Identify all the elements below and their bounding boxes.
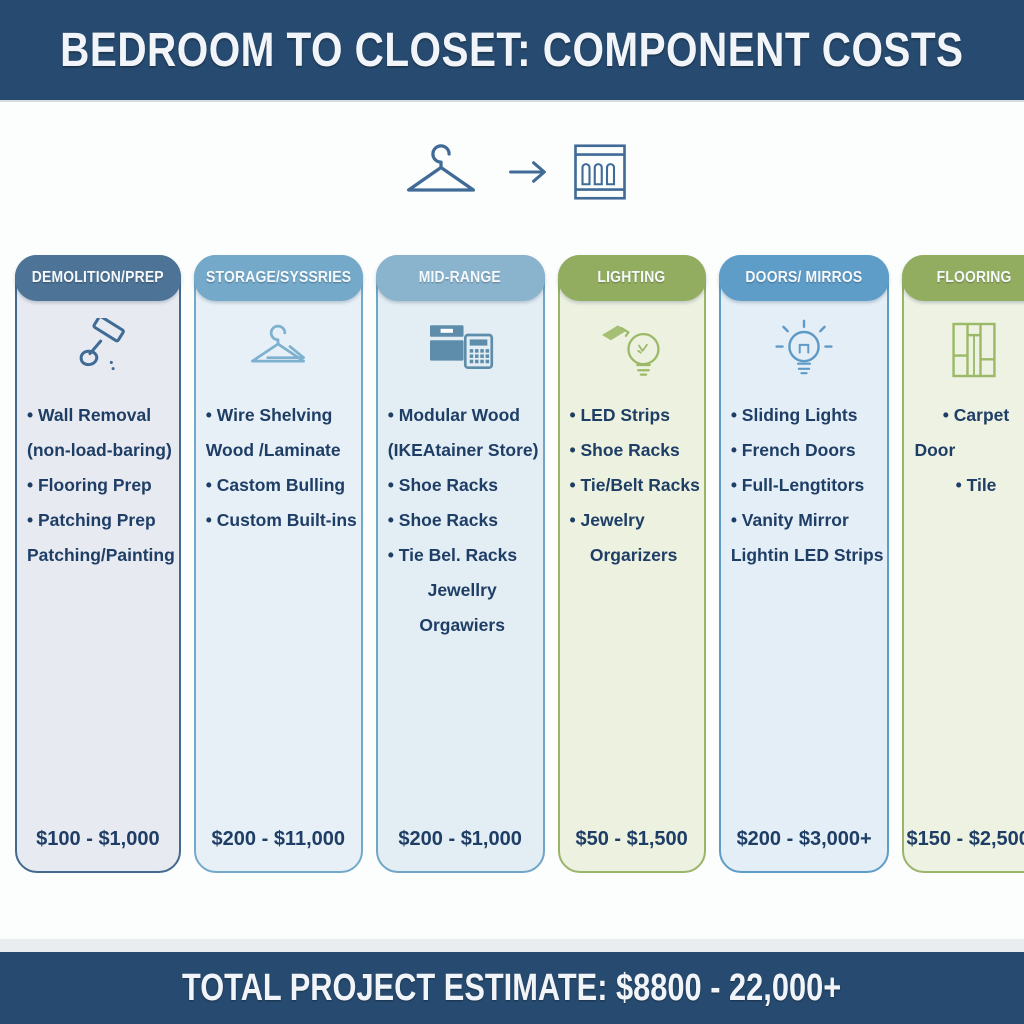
footer-band: TOTAL PROJECT ESTIMATE: $8800 - 22,000+ bbox=[0, 952, 1024, 1024]
item-list: • Sliding Lights• French Doors• Full-Len… bbox=[721, 393, 888, 580]
bulb-rays-icon bbox=[721, 307, 888, 393]
list-item: Lightin LED Strips bbox=[729, 545, 884, 566]
list-item: • Custom Built-ins bbox=[204, 510, 357, 531]
column-storage-syssries: STORAGE/SYSSRIES• Wire ShelvingWood /Lam… bbox=[194, 255, 363, 873]
list-item: • Shoe Racks bbox=[386, 510, 539, 531]
list-item: (IKEAtainer Store) bbox=[386, 440, 539, 461]
price-range: $200 - $11,000 bbox=[196, 828, 361, 871]
demolition-hammer-icon bbox=[17, 307, 179, 393]
list-item: • Shoe Racks bbox=[568, 440, 700, 461]
column-header-label: LIGHTING bbox=[598, 270, 666, 287]
column-header: STORAGE/SYSSRIES bbox=[194, 255, 363, 301]
list-item: • Tie Bel. Racks bbox=[386, 545, 539, 566]
arrow-right-icon bbox=[506, 155, 552, 189]
list-item: Orgawiers bbox=[386, 615, 539, 636]
list-item: Patching/Painting bbox=[25, 545, 175, 566]
list-item: Wood /Laminate bbox=[204, 440, 357, 461]
item-list: • Wall Removal(non-load-baring)• Floorin… bbox=[17, 393, 179, 580]
column-header-label: DOORS/ MIRROS bbox=[746, 270, 863, 287]
list-item: • Sliding Lights bbox=[729, 405, 884, 426]
price-range: $150 - $2,500+ bbox=[904, 828, 1024, 871]
list-item: • Patching Prep bbox=[25, 510, 175, 531]
column-doors-mirros: DOORS/ MIRROS• Sliding Lights• French Do… bbox=[719, 255, 890, 873]
list-item: • Shoe Racks bbox=[386, 475, 539, 496]
led-bulb-icon bbox=[560, 307, 704, 393]
column-header: DOORS/ MIRROS bbox=[719, 255, 890, 301]
item-list: • CarpetDoor• Tile bbox=[904, 393, 1024, 510]
list-item: Jewellry bbox=[386, 580, 539, 601]
list-item: • Castom Bulling bbox=[204, 475, 357, 496]
list-item: • Vanity Mirror bbox=[729, 510, 884, 531]
total-estimate: TOTAL PROJECT ESTIMATE: $8800 - 22,000+ bbox=[182, 966, 841, 1009]
price-range: $200 - $3,000+ bbox=[721, 828, 888, 871]
column-mid-range: MID-RANGE• Modular Wood(IKEAtainer Store… bbox=[376, 255, 545, 873]
price-range: $200 - $1,000 bbox=[378, 828, 543, 871]
list-item: • Tile bbox=[912, 475, 1024, 496]
list-item: Orgarizers bbox=[568, 545, 700, 566]
column-header-label: DEMOLITION/PREP bbox=[32, 270, 164, 287]
list-item: • Wire Shelving bbox=[204, 405, 357, 426]
column-header-label: MID-RANGE bbox=[419, 270, 501, 287]
item-list: • Modular Wood(IKEAtainer Store)• Shoe R… bbox=[378, 393, 543, 650]
list-item: • Flooring Prep bbox=[25, 475, 175, 496]
list-item: • Wall Removal bbox=[25, 405, 175, 426]
column-flooring: FLOORING• CarpetDoor• Tile$150 - $2,500+ bbox=[902, 255, 1024, 873]
page-title: BEDROOM TO CLOSET: COMPONENT COSTS bbox=[60, 22, 963, 78]
column-demolition-prep: DEMOLITION/PREP• Wall Removal(non-load-b… bbox=[15, 255, 181, 873]
list-item: • Modular Wood bbox=[386, 405, 539, 426]
column-header-label: FLOORING bbox=[937, 270, 1012, 287]
price-range: $50 - $1,500 bbox=[560, 828, 704, 871]
closet-icon bbox=[572, 143, 628, 201]
price-range: $100 - $1,000 bbox=[17, 828, 179, 871]
list-item: • Full-Lengtitors bbox=[729, 475, 884, 496]
list-item: Door bbox=[912, 440, 1024, 461]
column-header: MID-RANGE bbox=[376, 255, 545, 301]
list-item: • Carpet bbox=[912, 405, 1024, 426]
transformation-graphic bbox=[0, 126, 1024, 218]
column-header-label: STORAGE/SYSSRIES bbox=[206, 270, 351, 287]
item-list: • Wire ShelvingWood /Laminate• Castom Bu… bbox=[196, 393, 361, 545]
header-band: BEDROOM TO CLOSET: COMPONENT COSTS bbox=[0, 0, 1024, 100]
column-header: FLOORING bbox=[902, 255, 1024, 301]
column-header: LIGHTING bbox=[558, 255, 706, 301]
hanger-icon bbox=[396, 140, 486, 204]
column-header: DEMOLITION/PREP bbox=[15, 255, 181, 301]
storage-boxes-icon bbox=[378, 307, 543, 393]
floor-tile-icon bbox=[904, 307, 1024, 393]
footer-divider bbox=[0, 939, 1024, 952]
column-lighting: LIGHTING• LED Strips• Shoe Racks• Tie/Be… bbox=[558, 255, 706, 873]
list-item: • LED Strips bbox=[568, 405, 700, 426]
list-item: • Jewelry bbox=[568, 510, 700, 531]
list-item: • French Doors bbox=[729, 440, 884, 461]
hangers-icon bbox=[196, 307, 361, 393]
list-item: (non-load-baring) bbox=[25, 440, 175, 461]
item-list: • LED Strips• Shoe Racks• Tie/Belt Racks… bbox=[560, 393, 704, 580]
cost-columns: DEMOLITION/PREP• Wall Removal(non-load-b… bbox=[15, 255, 1009, 873]
list-item: • Tie/Belt Racks bbox=[568, 475, 700, 496]
